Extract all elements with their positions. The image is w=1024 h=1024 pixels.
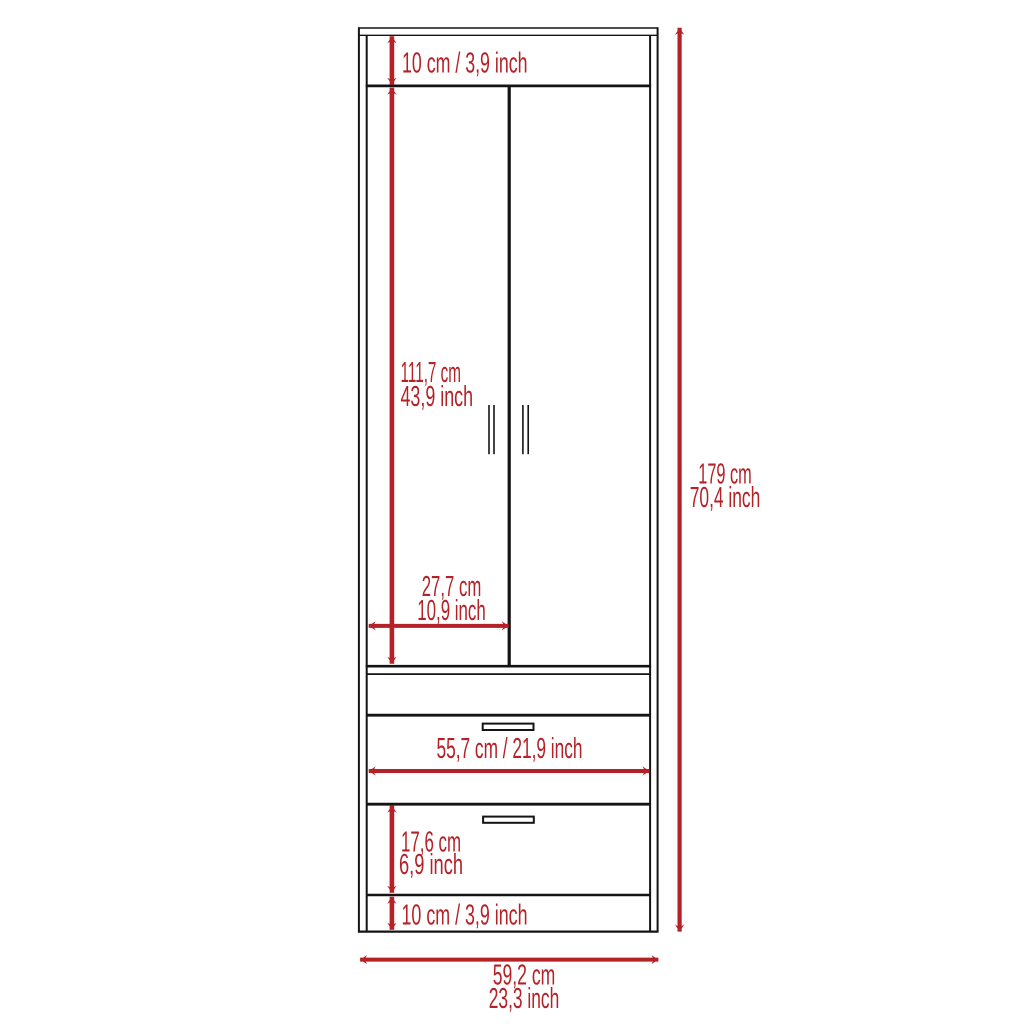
svg-text:10 cm / 3,9 inch: 10 cm / 3,9 inch	[402, 48, 528, 80]
svg-text:10,9 inch: 10,9 inch	[417, 595, 486, 627]
svg-text:23,3 inch: 23,3 inch	[489, 983, 560, 1015]
svg-text:10 cm / 3,9 inch: 10 cm / 3,9 inch	[402, 899, 528, 931]
svg-text:43,9 inch: 43,9 inch	[401, 381, 474, 413]
svg-text:70,4 inch: 70,4 inch	[690, 482, 761, 514]
svg-text:55,7 cm / 21,9 inch: 55,7 cm / 21,9 inch	[437, 733, 583, 765]
svg-text:6,9 inch: 6,9 inch	[399, 849, 463, 881]
